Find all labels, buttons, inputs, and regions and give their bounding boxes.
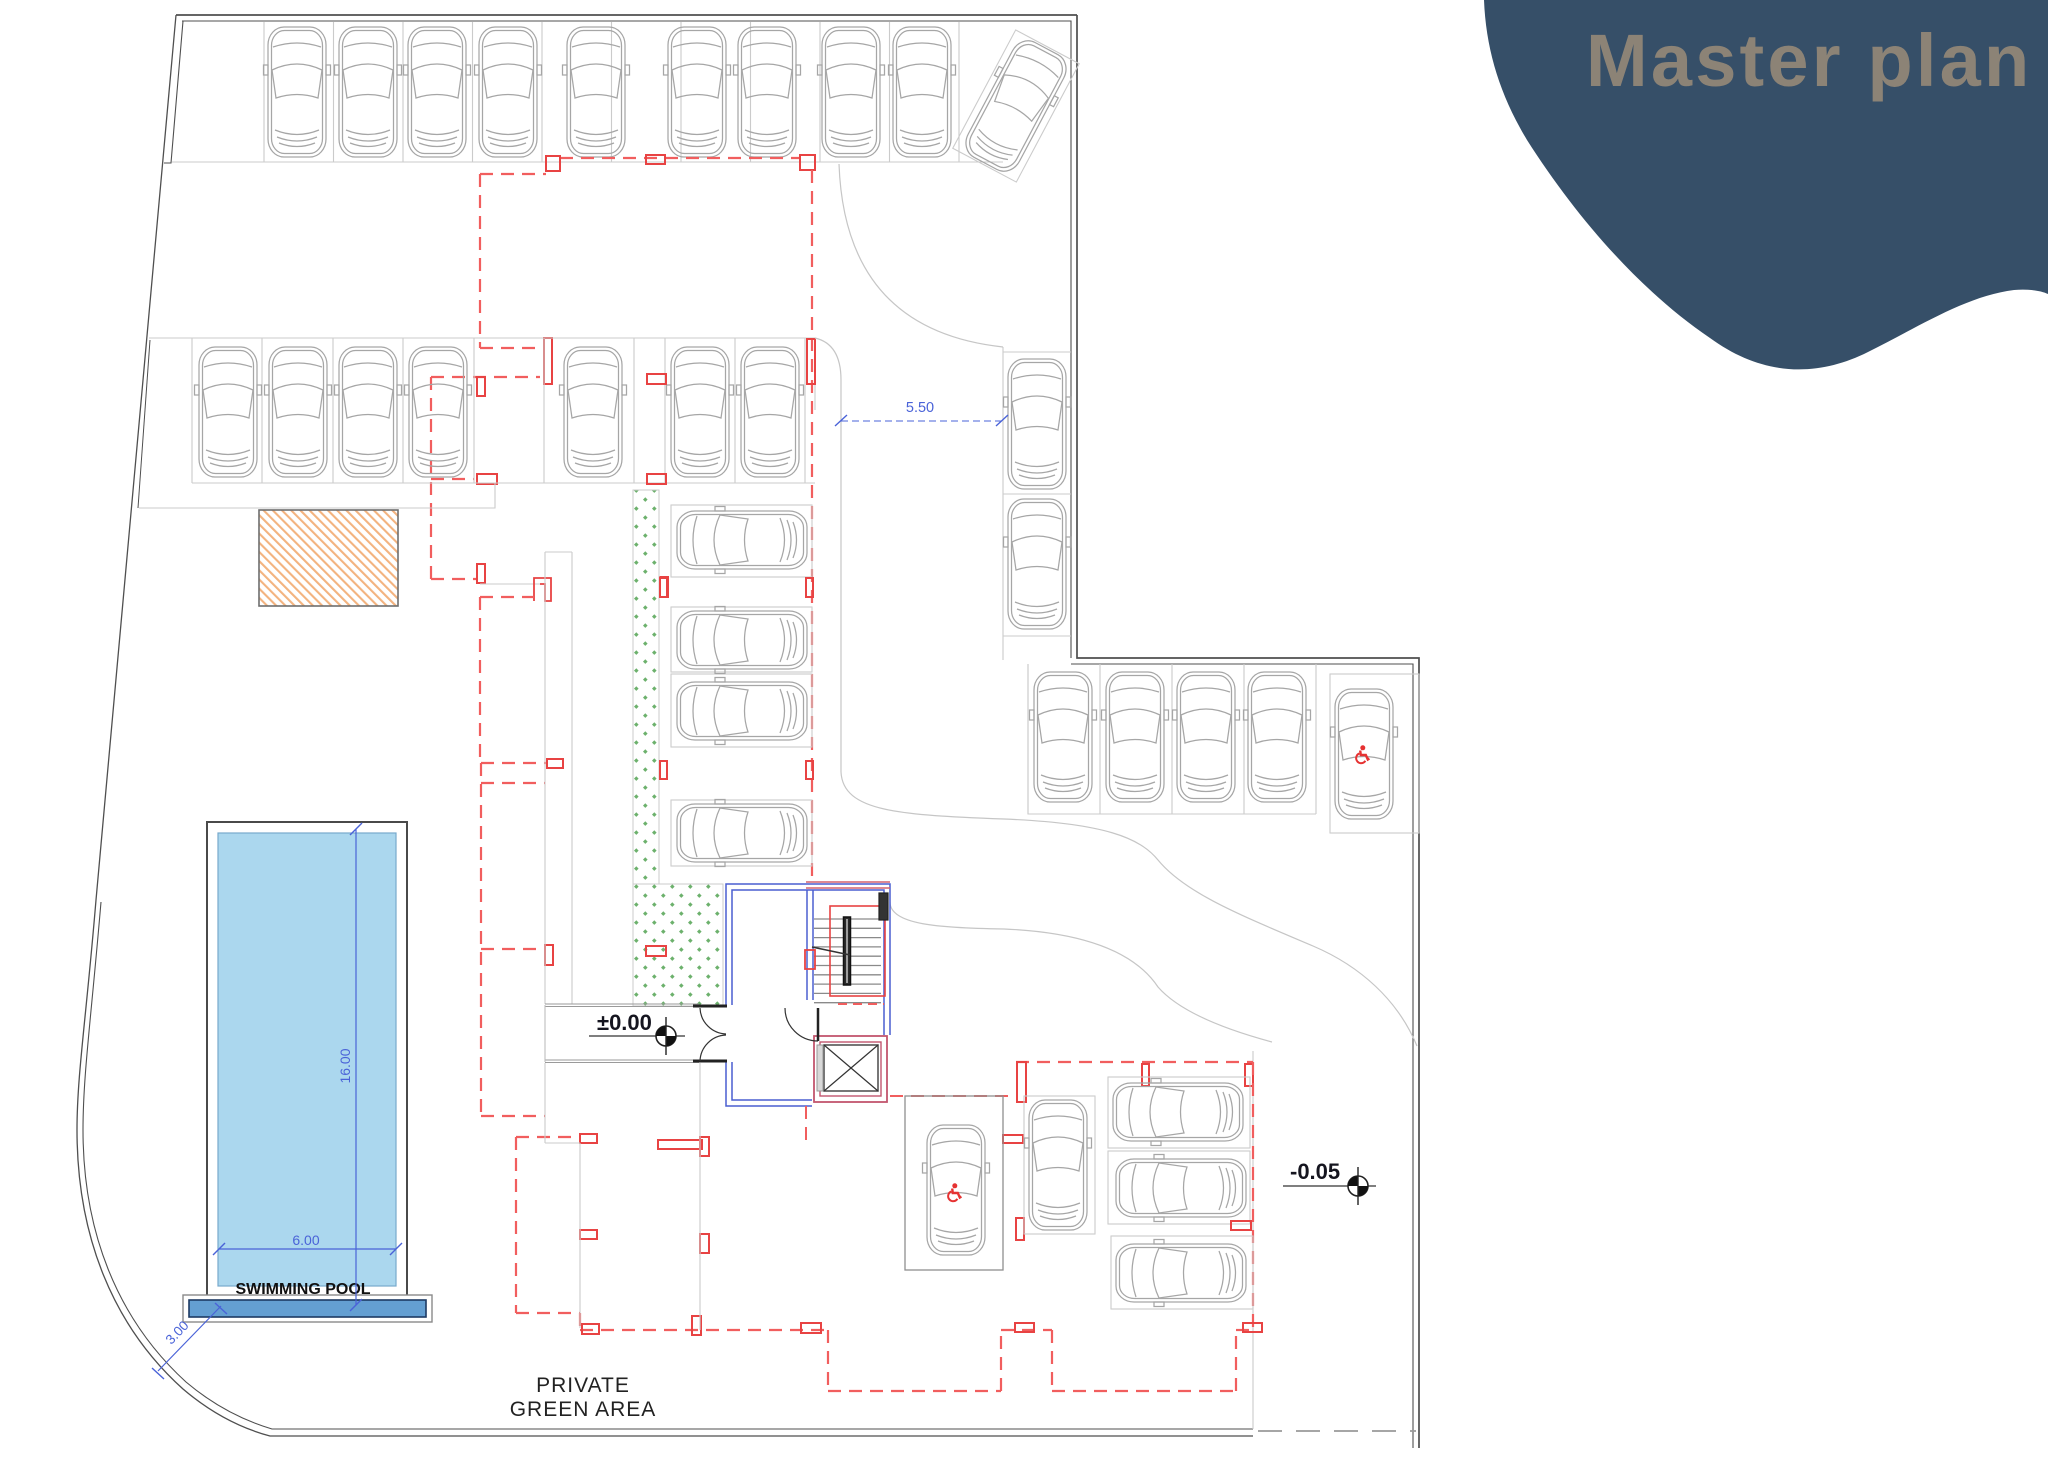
svg-text:Master plan: Master plan: [1586, 19, 2032, 102]
svg-text:16.00: 16.00: [337, 1048, 353, 1083]
svg-text:GREEN AREA: GREEN AREA: [510, 1398, 657, 1421]
svg-text:-0.05: -0.05: [1290, 1159, 1340, 1184]
svg-text:±0.00: ±0.00: [597, 1010, 652, 1035]
svg-text:SWIMMING POOL: SWIMMING POOL: [235, 1281, 370, 1298]
svg-text:6.00: 6.00: [292, 1232, 319, 1248]
svg-text:5.50: 5.50: [906, 400, 934, 416]
svg-text:PRIVATE: PRIVATE: [536, 1374, 630, 1397]
